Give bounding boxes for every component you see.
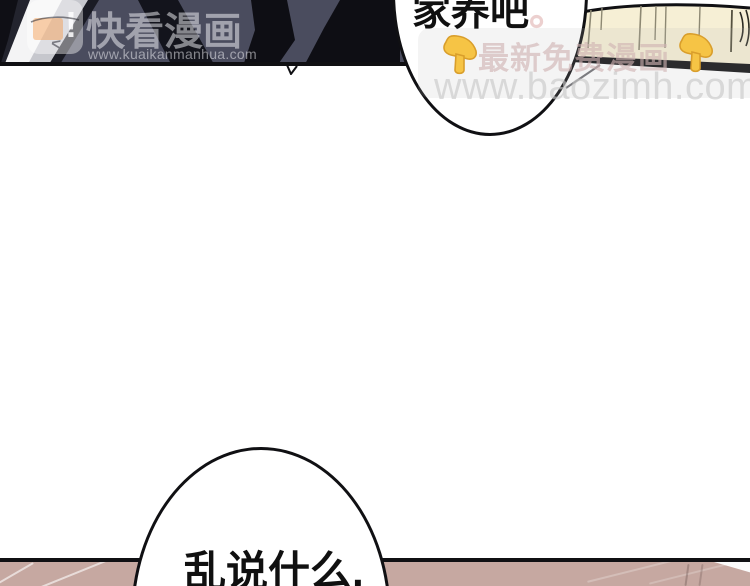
floor-white-wedge [710, 562, 750, 575]
floor-highlight-line [0, 562, 34, 584]
panel-silhouette-b [300, 0, 400, 66]
floor-shadow-line [698, 564, 703, 586]
panel-tail-tick [286, 64, 298, 75]
kuaikan-site-url: www.kuaikanmanhua.com [88, 46, 257, 62]
comic-page: 家养吧。 最新免费漫画 www.baozimh.com ! < 快看漫画 www… [0, 0, 750, 586]
pointing-down-finger-icon [440, 32, 480, 76]
floor-highlight-line [31, 558, 111, 586]
speech-text-bottom: 乱说什么, [184, 551, 364, 586]
kuaikan-app-icon: ! < [27, 0, 83, 54]
floor-shadow-line [684, 564, 689, 586]
pointing-down-finger-icon [676, 30, 716, 74]
